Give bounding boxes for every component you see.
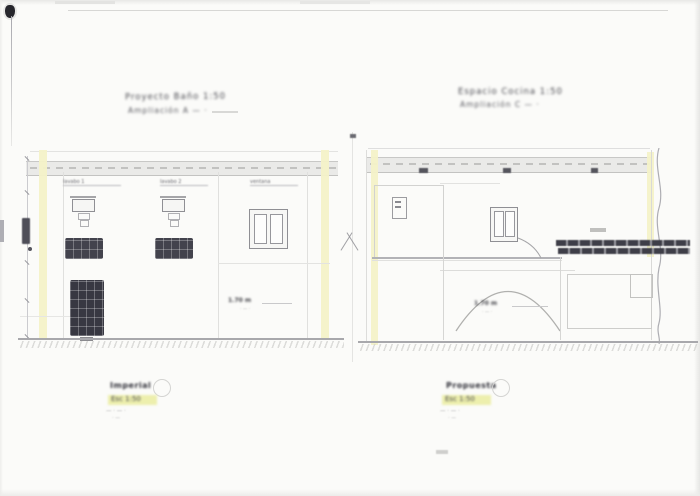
sheet-border-top [68,10,668,11]
dimension-text-block [22,218,30,244]
wall-partition-line [63,172,64,338]
band-fixture-dot [591,168,598,173]
fixture-label: lavabo 2 [160,179,208,186]
window-pane [505,211,515,237]
fold-line [352,132,353,362]
torn-edge-mark [300,1,370,4]
wall-faint-line [440,183,500,184]
pin-icon [5,5,15,18]
faucet-curve [516,236,544,260]
right-footer-stamp-circle [492,379,510,397]
dimension-annotation: 1.70 m [474,300,514,307]
wall-partition-line [560,257,561,340]
left-footer-note: — · — · [106,408,158,414]
wall-partition-line [443,257,444,340]
ground-line [18,338,344,340]
counter-dark-band-row [556,240,690,246]
scan-edge-left [0,0,3,496]
right-footer-note: · — [448,415,488,421]
annotation-leader-line [262,303,292,304]
sink-drain-pipe [170,220,179,227]
fold-x-mark [341,232,353,250]
dimension-annotation: 1.70 m [228,297,266,304]
window-pane [494,211,504,237]
sink-basin [72,199,95,212]
wall-partition-line [307,172,308,338]
right-panel-title-line1: Espacio Cocina 1:50 [458,87,588,97]
left-panel-title-line1: Proyecto Baño 1:50 [125,91,260,102]
stray-scan-mark [436,450,448,454]
scanned-drawing-sheet: Proyecto Baño 1:50 Ampliación A — · lava… [0,0,700,496]
annotation-sub: · — · [482,310,512,315]
sink-drain-pipe [78,213,90,220]
sink-top-bar [160,196,186,198]
wall-mid-line [218,263,330,264]
right-footer-scale-highlighted: Esc 1:50 [442,395,491,405]
small-box-outline [630,274,653,298]
left-footer-note: · — [112,415,152,421]
right-panel-title-line2: Ampliación C — · [460,100,560,109]
sink-pedestal-dark [65,238,103,259]
band-fixture-dot [419,168,428,173]
sink-top-bar [70,196,96,198]
left-footer-scale-highlighted: Esc 1:50 [108,395,157,405]
panel-edge-line [366,150,367,341]
pin-string-line [11,16,12,146]
counter-hatch-mark [590,228,606,232]
dimension-dot [28,247,32,251]
radiator-dark [70,280,104,336]
beam-band-dashes [370,163,650,165]
sink-pedestal-dark [155,238,193,259]
left-edge-mark [0,220,4,242]
band-fixture-dot [503,168,511,173]
fold-top-mark [350,134,356,138]
torn-edge-mark [55,1,115,4]
counter-dark-band-row [558,248,690,254]
window-pane [254,214,267,244]
fixture-label: lavabo 1 [63,179,121,186]
wall-highlight-strip-right [321,150,329,340]
break-line-wavy [650,148,668,344]
ground-hatch [18,341,344,348]
sink-basin [162,199,185,212]
countertop-shadow-line [372,260,562,261]
wall-top-line [368,148,650,149]
scan-edge-bottom [0,489,700,496]
wall-partition-line [218,172,219,338]
scan-edge-right [694,0,700,496]
switch-box-mark [395,201,401,203]
sink-drain-pipe [168,213,180,220]
ground-hatch [358,344,698,351]
left-footer-name: Imperial [110,381,158,390]
window-pane [270,214,283,244]
fixture-label: ventana [250,179,298,186]
ground-line [358,341,698,343]
wall-cabinet-outline [374,185,444,259]
title-underline-mark [212,111,238,113]
wall-top-line [30,151,338,152]
annotation-sub: · — · [240,307,274,312]
right-footer-note: — · — · [440,408,496,414]
switch-box-mark [395,206,401,208]
arch-opening [452,262,564,332]
annotation-leader-line [512,306,548,307]
right-footer-name: Propuesta [446,381,496,390]
sink-drain-pipe [80,220,89,227]
beam-band-dashes [30,167,336,169]
wall-highlight-strip-left [39,150,47,340]
